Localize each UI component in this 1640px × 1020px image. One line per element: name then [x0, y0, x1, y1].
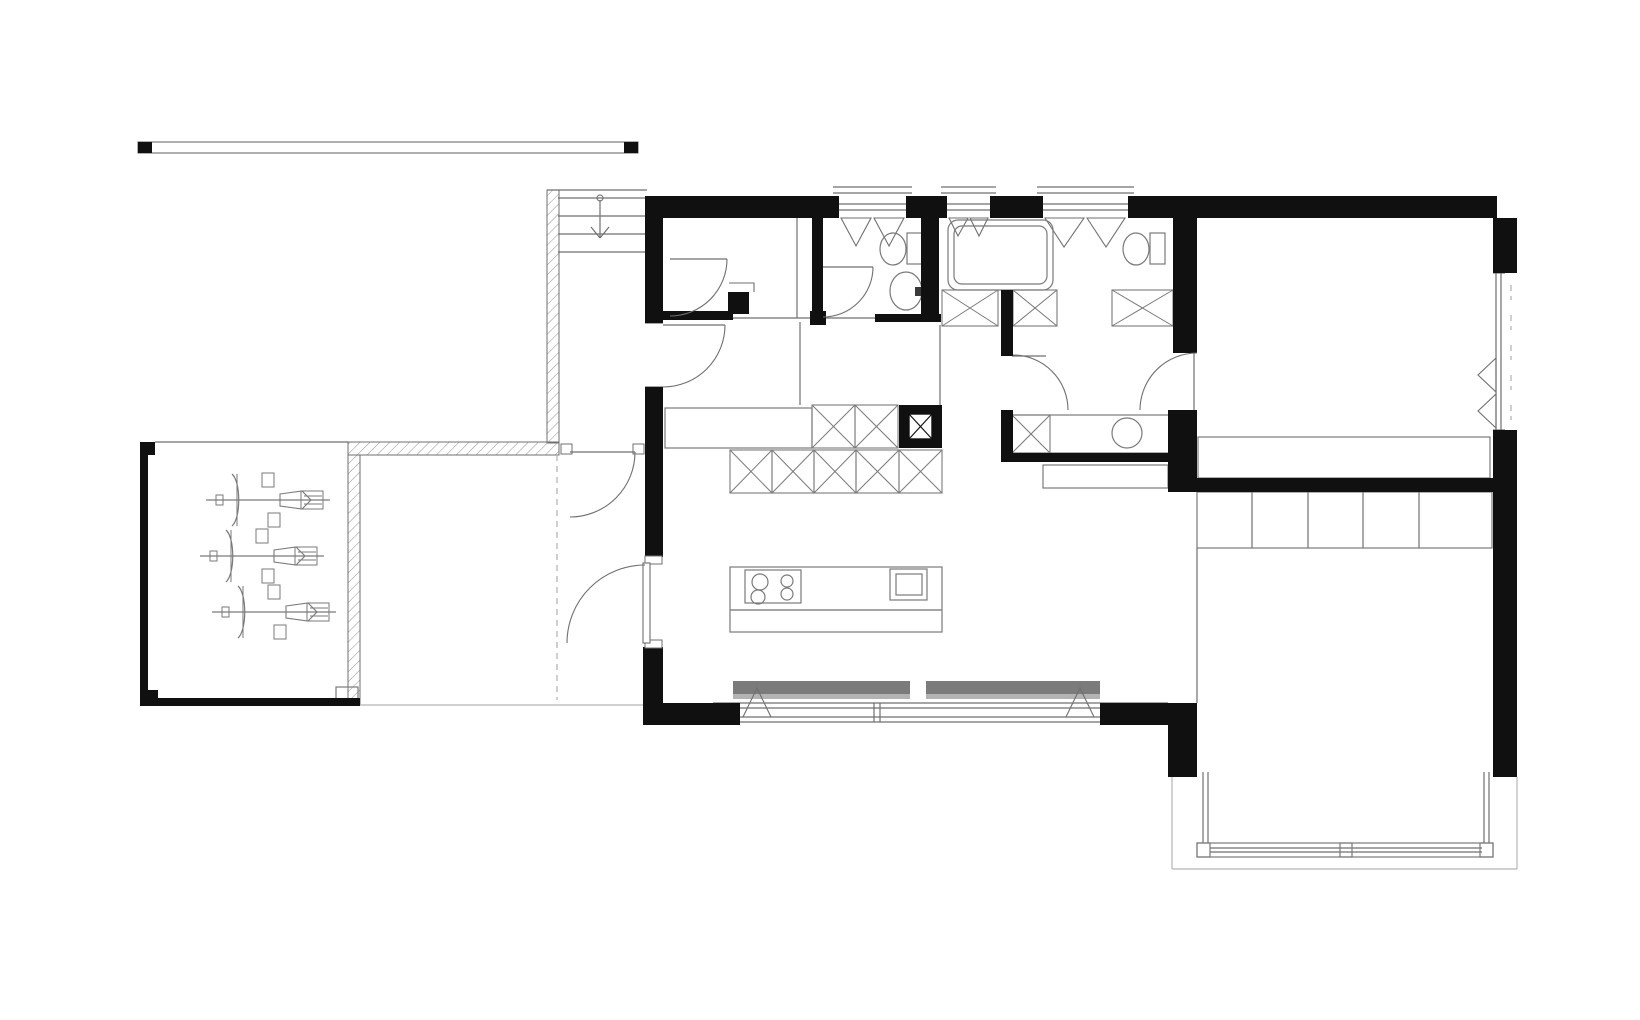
- window-casement-icon: [1087, 218, 1125, 247]
- window-casement-icon: [1478, 394, 1496, 428]
- wall-segment: [1128, 196, 1497, 218]
- furniture-outline: [907, 233, 922, 264]
- wall-segment: [1173, 218, 1197, 353]
- door-hall-swing-arc: [663, 325, 725, 387]
- wall-segment: [643, 703, 740, 725]
- furniture-outline: [138, 142, 638, 153]
- window-casement-icon: [970, 218, 988, 236]
- circle-fixture-icon: [781, 588, 793, 600]
- floor-plan-page: [0, 0, 1640, 1020]
- floor-plan-drawing: [0, 0, 1640, 1020]
- furniture-outline: [896, 574, 922, 595]
- wall-segment: [645, 196, 839, 218]
- plan-polyline: [729, 283, 754, 292]
- wall-segment: [658, 311, 733, 320]
- door-entry-leaf: [643, 563, 650, 643]
- scale-bar-cap: [624, 142, 638, 153]
- door-office-swing-arc: [670, 259, 727, 316]
- window-casement-icon: [874, 218, 904, 246]
- hatched-wall: [348, 455, 360, 705]
- plan-line: [591, 227, 600, 238]
- bicycle-part: [268, 513, 280, 527]
- wall-segment: [812, 218, 823, 318]
- wall-segment: [1168, 478, 1513, 492]
- wall-segment: [1001, 453, 1177, 462]
- bicycle-part: [262, 569, 274, 583]
- sanitary-oval-icon: [1123, 233, 1149, 265]
- circle-fixture-icon: [1112, 418, 1142, 448]
- wall-segment: [140, 698, 360, 706]
- furniture-outline: [1197, 492, 1492, 548]
- shade-bar-gap: [910, 681, 926, 699]
- door-vestibule-swing-arc: [570, 452, 635, 517]
- window-casement-icon: [1478, 358, 1496, 392]
- wall-segment: [728, 292, 749, 314]
- wall-segment: [645, 196, 663, 323]
- plan-line: [600, 227, 609, 238]
- furniture-outline: [1198, 437, 1490, 478]
- bicycle-part: [262, 473, 274, 487]
- bathtub-icon: [948, 220, 1053, 290]
- scale-bar-cap: [138, 142, 152, 153]
- bicycle-icon: [206, 473, 330, 527]
- hatched-wall: [547, 190, 559, 443]
- furniture-outline: [1043, 465, 1168, 488]
- furniture-outline: [1197, 843, 1493, 857]
- furniture-outline: [665, 408, 812, 448]
- door-bathroom-swing-arc: [1013, 355, 1068, 410]
- wall-segment: [1493, 430, 1517, 777]
- furniture-outline: [1197, 843, 1210, 857]
- circle-fixture-icon: [752, 574, 768, 590]
- door-wc-swing-arc: [823, 267, 873, 317]
- wall-segment: [140, 442, 148, 705]
- bicycle-part: [274, 625, 286, 639]
- door-bedroom-swing-arc: [1140, 353, 1197, 410]
- bicycle-part: [256, 529, 268, 543]
- bicycle-icon: [200, 529, 324, 583]
- bicycle-icon: [212, 585, 336, 639]
- furniture-outline: [1480, 843, 1493, 857]
- wall-segment: [1001, 410, 1013, 458]
- wall-segment: [875, 314, 941, 322]
- wall-segment: [921, 218, 939, 322]
- wall-segment: [1173, 720, 1197, 777]
- wall-segment: [1493, 218, 1517, 273]
- circle-fixture-icon: [751, 590, 765, 604]
- door-entry-swing-arc: [567, 565, 645, 643]
- window-casement-icon: [1045, 218, 1084, 247]
- window-casement-icon: [841, 218, 871, 246]
- wall-segment: [810, 311, 826, 325]
- hatched-wall: [348, 442, 559, 455]
- circle-fixture-icon: [781, 575, 793, 587]
- wall-segment: [1001, 290, 1013, 356]
- wall-segment: [645, 387, 663, 557]
- furniture-outline: [1012, 415, 1177, 453]
- furniture-outline: [1150, 233, 1165, 264]
- wall-segment: [990, 196, 1043, 218]
- wall-segment: [906, 196, 947, 218]
- bicycle-part: [268, 585, 280, 599]
- furniture-outline: [1340, 843, 1352, 857]
- bathtub-icon: [954, 226, 1047, 284]
